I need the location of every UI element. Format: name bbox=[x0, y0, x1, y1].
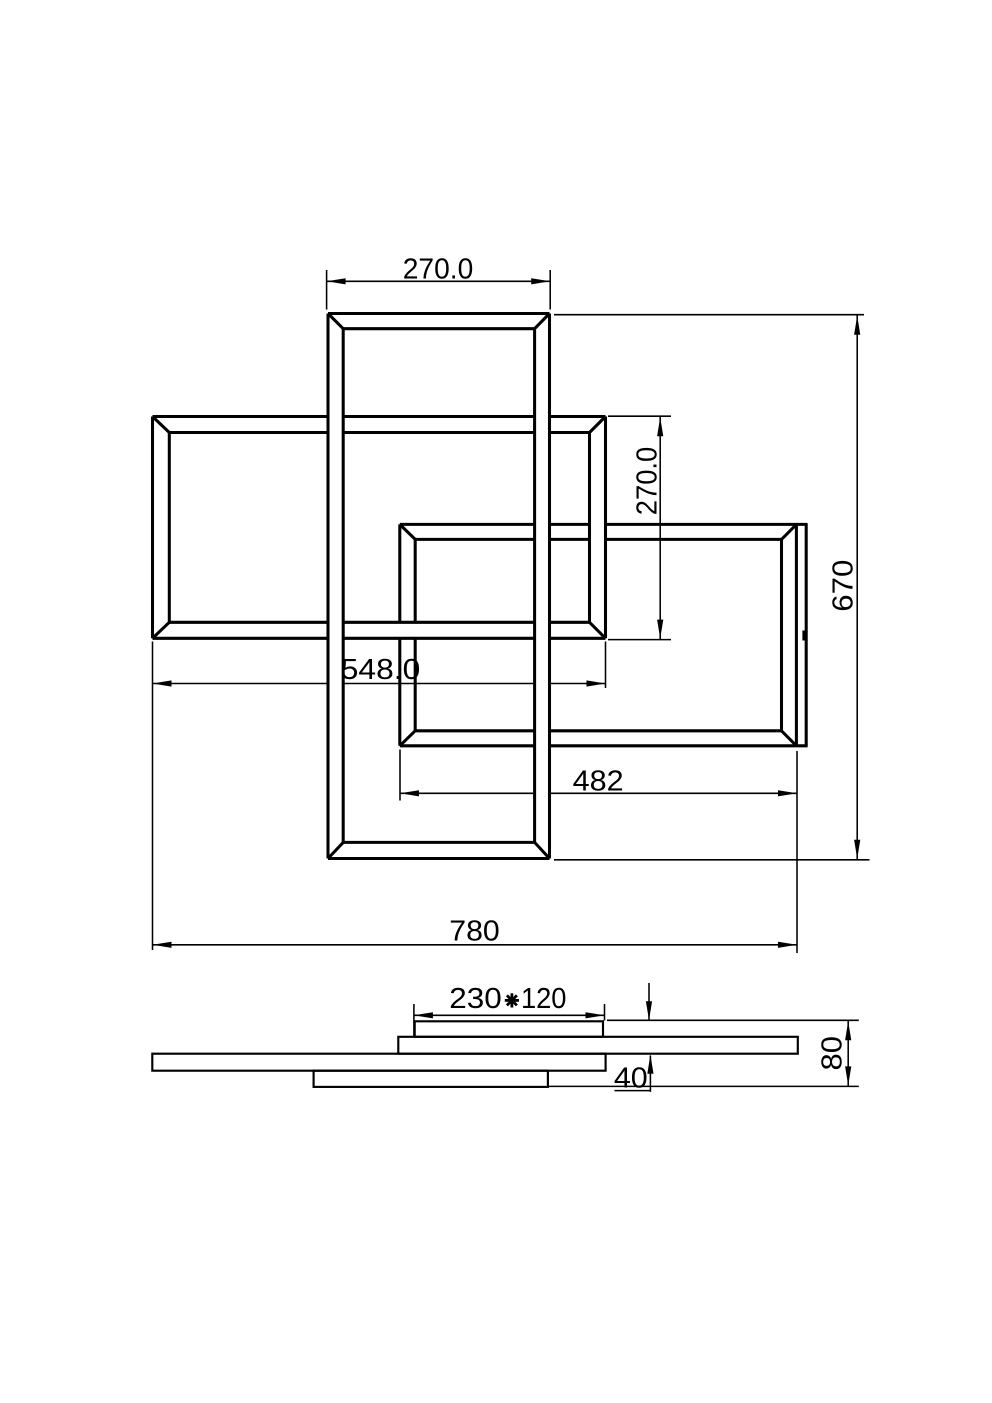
svg-text:548.0: 548.0 bbox=[341, 654, 421, 686]
svg-text:270.0: 270.0 bbox=[632, 447, 664, 516]
svg-text:80: 80 bbox=[817, 1036, 849, 1071]
svg-text:270.0: 270.0 bbox=[403, 254, 474, 286]
svg-text:780: 780 bbox=[449, 916, 500, 948]
svg-text:482: 482 bbox=[573, 766, 624, 798]
svg-text:670: 670 bbox=[828, 560, 860, 612]
svg-text:230: 230 bbox=[449, 983, 502, 1015]
svg-text:40: 40 bbox=[614, 1062, 648, 1094]
svg-text:120: 120 bbox=[521, 983, 567, 1015]
